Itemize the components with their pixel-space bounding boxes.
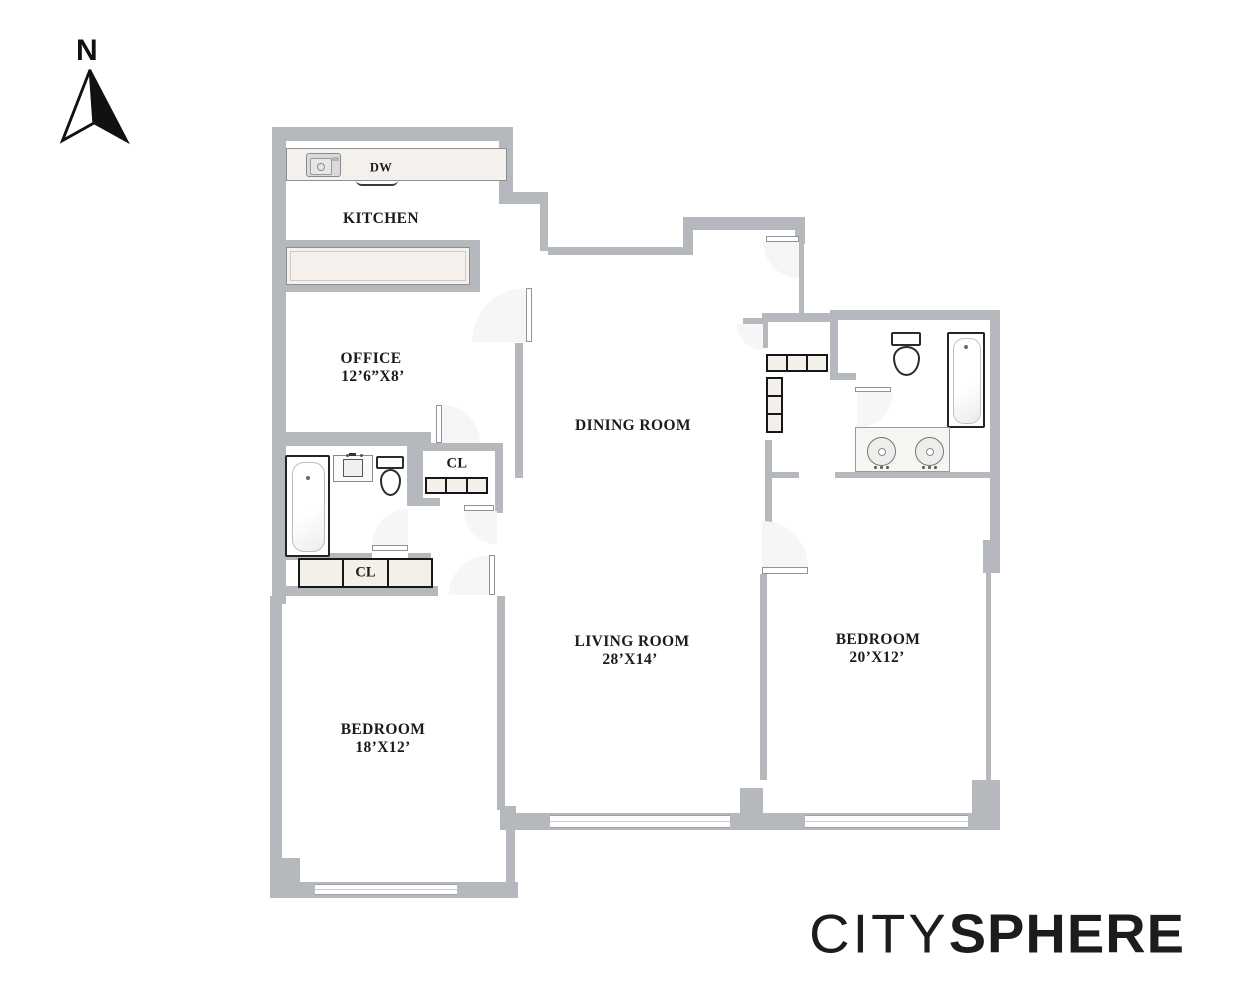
bathtub-icon (285, 455, 330, 557)
brand-logo: CITYSPHERE (809, 902, 1185, 966)
dishwasher-icon (356, 180, 398, 186)
wall (495, 443, 503, 513)
wall (683, 217, 805, 230)
room-dims-office: 12’6”X8’ (341, 368, 404, 386)
room-dims-living: 28’X14’ (602, 651, 657, 669)
wall (986, 573, 991, 780)
kitchen-island-counter (286, 247, 470, 285)
kitchen-sink-icon (306, 153, 341, 177)
door-leaf (436, 405, 442, 443)
closet-label: CL (447, 456, 468, 473)
wall (760, 574, 767, 780)
door-leaf (766, 236, 799, 242)
wall (280, 858, 300, 883)
window-icon (315, 884, 457, 895)
wall (830, 310, 838, 377)
door-leaf (489, 555, 495, 595)
closet-shelves-icon (425, 477, 488, 494)
wall (830, 310, 1000, 320)
room-label-kitchen: KITCHEN (343, 210, 419, 228)
room-label-bedroom-left: BEDROOM (341, 721, 426, 739)
wall (766, 472, 799, 478)
room-dims-bedroom-left: 18’X12’ (355, 739, 410, 757)
closet-long: CL (298, 558, 433, 588)
room-label-dining: DINING ROOM (575, 417, 691, 435)
wall (497, 596, 505, 810)
door-leaf (464, 505, 494, 511)
door-swing-icon (442, 405, 480, 443)
wall (272, 127, 513, 141)
wall (990, 310, 1000, 540)
wall (740, 788, 763, 815)
wall (765, 440, 772, 524)
dishwasher-label: DW (370, 161, 392, 176)
door-swing-icon (737, 324, 763, 350)
door-swing-icon (464, 511, 497, 544)
wall (830, 373, 856, 380)
window-icon (550, 815, 730, 828)
door-swing-icon (372, 509, 408, 545)
wall (270, 596, 282, 898)
bathtub-icon (947, 332, 985, 428)
wall (407, 498, 440, 506)
wall (272, 127, 286, 604)
wall (540, 202, 548, 251)
door-leaf (855, 387, 891, 392)
door-swing-icon (472, 288, 526, 342)
toilet-icon (893, 346, 920, 376)
wall (835, 472, 990, 478)
room-label-bedroom-right: BEDROOM (836, 631, 921, 649)
double-vanity-icon (855, 427, 950, 472)
closet-label: CL (355, 565, 375, 582)
window-icon (805, 815, 968, 828)
door-swing-icon (857, 392, 893, 428)
door-leaf (526, 288, 532, 342)
door-leaf (372, 545, 408, 551)
toilet-icon (380, 469, 401, 496)
door-leaf (762, 567, 808, 574)
closet-shelves-icon (766, 354, 828, 372)
closet-shelves-icon (766, 377, 783, 433)
north-label: N (76, 34, 98, 68)
vanity-sink-icon (333, 455, 373, 482)
floor-plan: N (0, 0, 1249, 1000)
toilet-icon (891, 332, 921, 346)
room-label-office: OFFICE (341, 350, 402, 368)
wall (762, 313, 833, 322)
wall (799, 244, 804, 314)
door-swing-icon (762, 521, 808, 567)
room-dims-bedroom-right: 20’X12’ (849, 649, 904, 667)
wall (515, 343, 523, 478)
north-arrow-icon (49, 63, 133, 157)
wall (423, 443, 503, 451)
wall (506, 826, 515, 886)
wall (407, 443, 423, 505)
door-swing-icon (449, 555, 489, 595)
wall (983, 540, 1000, 573)
brand-part-city: CITY (809, 903, 949, 965)
wall (548, 247, 685, 255)
toilet-icon (376, 456, 404, 469)
door-swing-icon (763, 242, 799, 278)
room-label-living: LIVING ROOM (574, 633, 689, 651)
brand-part-sphere: SPHERE (949, 903, 1185, 965)
